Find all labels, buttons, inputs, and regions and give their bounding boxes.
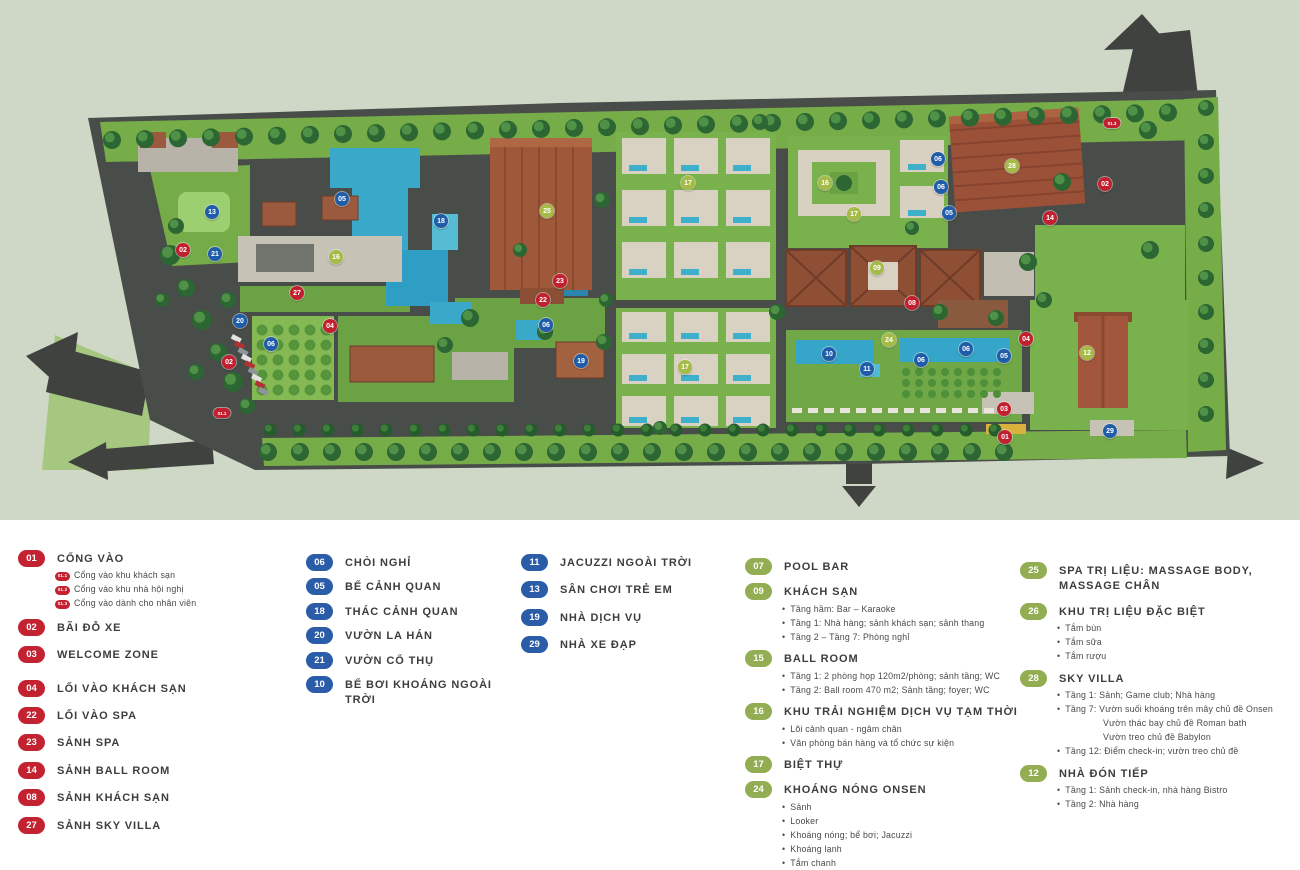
bullet: • bbox=[1057, 691, 1060, 701]
legend-sub-item: •Lõi cảnh quan - ngâm chân bbox=[782, 725, 1027, 735]
map-marker-03: 03 bbox=[997, 402, 1011, 416]
legend-badge-23: 23 bbox=[18, 734, 45, 751]
legend-item-14: 14SẢNH BALL ROOM bbox=[18, 762, 286, 779]
legend-sub-item: 01.2Cổng vào khu nhà hội nghị bbox=[55, 585, 286, 595]
legend-item-02: 02BÃI ĐỖ XE bbox=[18, 619, 286, 636]
map-marker-14: 14 bbox=[1043, 211, 1057, 225]
legend-badge-14: 14 bbox=[18, 762, 45, 779]
legend-item-05: 05BỂ CẢNH QUAN bbox=[306, 578, 511, 595]
legend-sub-item: •Tắm sữa bbox=[1057, 638, 1295, 648]
bullet: • bbox=[1057, 652, 1060, 662]
map-marker-11: 11 bbox=[860, 362, 874, 376]
legend-label: BỂ CẢNH QUAN bbox=[345, 578, 441, 595]
legend-label: LỐI VÀO KHÁCH SẠN bbox=[57, 680, 187, 697]
legend-sub-item: •Tầng 1: Sảnh check-in, nhà hàng Bistro bbox=[1057, 786, 1295, 796]
bullet: • bbox=[782, 633, 785, 643]
map-marker-28: 28 bbox=[1005, 159, 1019, 173]
legend-sub-badge-01.3: 01.3 bbox=[55, 600, 70, 609]
legend-badge-11: 11 bbox=[521, 554, 548, 571]
legend-sub-item: •Tầng 7: Vườn suối khoáng trên mây chủ đ… bbox=[1057, 705, 1295, 715]
map-marker-16: 16 bbox=[329, 250, 343, 264]
legend-label: SPA TRỊ LIỆU: MASSAGE BODY, MASSAGE CHÂN bbox=[1059, 562, 1295, 595]
legend-sub-item: •Tắm bùn bbox=[1057, 624, 1295, 634]
map-marker-13: 13 bbox=[205, 205, 219, 219]
legend-sub-item: •Looker bbox=[782, 817, 1027, 827]
legend-item-13: 13SÂN CHƠI TRẺ EM bbox=[521, 581, 726, 598]
bullet: • bbox=[1057, 800, 1060, 810]
legend-label: SẢNH BALL ROOM bbox=[57, 762, 170, 779]
map-marker-01: 01 bbox=[998, 430, 1012, 444]
legend-sub-item: •Tầng 2: Ball room 470 m2; Sảnh tầng; fo… bbox=[782, 686, 1027, 696]
legend-label: LỐI VÀO SPA bbox=[57, 707, 137, 724]
legend-sub-item: •Tầng 2 – Tầng 7: Phòng nghỉ bbox=[782, 633, 1027, 643]
legend-badge-22: 22 bbox=[18, 707, 45, 724]
legend-sub-item: •Tầng 1: 2 phòng họp 120m2/phòng; sảnh t… bbox=[782, 672, 1027, 682]
legend-badge-21: 21 bbox=[306, 652, 333, 669]
legend-sub-item: •Tắm rượu bbox=[1057, 652, 1295, 662]
legend-sub-item: •Tầng hầm: Bar – Karaoke bbox=[782, 605, 1027, 615]
legend-label: WELCOME ZONE bbox=[57, 646, 159, 663]
legend-item-29: 29NHÀ XE ĐẠP bbox=[521, 636, 726, 653]
legend-badge-16: 16 bbox=[745, 703, 772, 720]
legend-label: NHÀ DỊCH VỤ bbox=[560, 609, 642, 626]
legend-badge-24: 24 bbox=[745, 781, 772, 798]
map-marker-06: 06 bbox=[264, 337, 278, 351]
map-marker-02: 02 bbox=[1098, 177, 1112, 191]
legend-item-11: 11JACUZZI NGOÀI TRỜI bbox=[521, 554, 726, 571]
bullet: • bbox=[782, 831, 785, 841]
legend-badge-05: 05 bbox=[306, 578, 333, 595]
legend-badge-01: 01 bbox=[18, 550, 45, 567]
legend-sub-badge-01.2: 01.2 bbox=[55, 586, 70, 595]
legend-label: SẢNH KHÁCH SẠN bbox=[57, 789, 170, 806]
legend-item-06: 06CHÒI NGHỈ bbox=[306, 554, 511, 571]
legend-item-26: 26KHU TRỊ LIỆU ĐẶC BIỆT•Tắm bùn•Tắm sữa•… bbox=[1020, 603, 1295, 662]
legend-label: SKY VILLA bbox=[1059, 670, 1124, 687]
legend-badge-06: 06 bbox=[306, 554, 333, 571]
bullet: • bbox=[782, 725, 785, 735]
legend-column-outdoor: 11JACUZZI NGOÀI TRỜI13SÂN CHƠI TRẺ EM19N… bbox=[521, 554, 726, 664]
legend-sub-item: •Tầng 2: Nhà hàng bbox=[1057, 800, 1295, 810]
legend-label: KHÁCH SẠN bbox=[784, 583, 858, 600]
legend-item-18: 18THÁC CẢNH QUAN bbox=[306, 603, 511, 620]
bullet: • bbox=[1057, 624, 1060, 634]
legend-sub-item: •Văn phòng bán hàng và tổ chức sự kiện bbox=[782, 739, 1027, 749]
legend-sub-item: •Tầng 12: Điểm check-in; vườn treo chủ đ… bbox=[1057, 747, 1295, 757]
map-marker-21: 21 bbox=[208, 247, 222, 261]
legend-sub-item: •Tắm chanh bbox=[782, 859, 1027, 869]
legend-badge-12: 12 bbox=[1020, 765, 1047, 782]
map-marker-05: 05 bbox=[335, 192, 349, 206]
legend-sub-badge-01.1: 01.1 bbox=[55, 572, 70, 581]
legend-label: SẢNH SPA bbox=[57, 734, 120, 751]
map-marker-10: 10 bbox=[822, 347, 836, 361]
legend-badge-26: 26 bbox=[1020, 603, 1047, 620]
map-marker-01.3: 01.3 bbox=[1104, 118, 1121, 128]
legend-badge-17: 17 bbox=[745, 756, 772, 773]
map-marker-20: 20 bbox=[233, 314, 247, 328]
legend-item-20: 20VƯỜN LA HÁN bbox=[306, 627, 511, 644]
legend-item-01: 01CỔNG VÀO01.1Cổng vào khu khách sạn01.2… bbox=[18, 550, 286, 609]
legend-sub-item: •Khoáng lạnh bbox=[782, 845, 1027, 855]
map-marker-06: 06 bbox=[539, 318, 553, 332]
map-marker-18: 18 bbox=[434, 214, 448, 228]
legend-label: NHÀ XE ĐẠP bbox=[560, 636, 637, 653]
map-marker-06: 06 bbox=[934, 180, 948, 194]
legend-label: KHOÁNG NÓNG ONSEN bbox=[784, 781, 926, 798]
legend-label: BALL ROOM bbox=[784, 650, 859, 667]
map-marker-layer: 1321020201.12006270416051825232206191717… bbox=[0, 0, 1300, 520]
legend-item-15: 15BALL ROOM•Tầng 1: 2 phòng họp 120m2/ph… bbox=[745, 650, 1027, 695]
bullet: • bbox=[782, 686, 785, 696]
legend-label: VƯỜN LA HÁN bbox=[345, 627, 433, 644]
legend-label: SẢNH SKY VILLA bbox=[57, 817, 161, 834]
legend-column-facilities: 07POOL BAR09KHÁCH SẠN•Tầng hầm: Bar – Ka… bbox=[745, 558, 1027, 870]
legend-badge-10: 10 bbox=[306, 676, 333, 693]
map-marker-25: 25 bbox=[540, 204, 554, 218]
legend-sub-item: •Tầng 1: Sảnh; Game club; Nhà hàng bbox=[1057, 691, 1295, 701]
legend-badge-07: 07 bbox=[745, 558, 772, 575]
legend-label: CHÒI NGHỈ bbox=[345, 554, 411, 571]
legend-label: BỂ BƠI KHOÁNG NGOÀI TRỜI bbox=[345, 676, 511, 709]
legend-item-25: 25SPA TRỊ LIỆU: MASSAGE BODY, MASSAGE CH… bbox=[1020, 562, 1295, 595]
legend: 01CỔNG VÀO01.1Cổng vào khu khách sạn01.2… bbox=[0, 520, 1300, 870]
map-marker-12: 12 bbox=[1080, 346, 1094, 360]
legend-label: SÂN CHƠI TRẺ EM bbox=[560, 581, 673, 598]
legend-sub-item: 01.3Cổng vào dành cho nhân viên bbox=[55, 599, 286, 609]
map-marker-02: 02 bbox=[222, 355, 236, 369]
legend-badge-15: 15 bbox=[745, 650, 772, 667]
legend-label: KHU TRỊ LIỆU ĐẶC BIỆT bbox=[1059, 603, 1206, 620]
bullet: • bbox=[1057, 638, 1060, 648]
map-marker-04: 04 bbox=[1019, 332, 1033, 346]
bullet: • bbox=[782, 672, 785, 682]
legend-item-23: 23SẢNH SPA bbox=[18, 734, 286, 751]
legend-badge-29: 29 bbox=[521, 636, 548, 653]
bullet: • bbox=[782, 619, 785, 629]
legend-label: POOL BAR bbox=[784, 558, 849, 575]
legend-item-24: 24KHOÁNG NÓNG ONSEN•Sảnh•Looker•Khoáng n… bbox=[745, 781, 1027, 870]
legend-label: BIỆT THỰ bbox=[784, 756, 843, 773]
bullet: • bbox=[1057, 786, 1060, 796]
legend-item-08: 08SẢNH KHÁCH SẠN bbox=[18, 789, 286, 806]
map-marker-01.1: 01.1 bbox=[214, 408, 231, 418]
legend-sub-item: •Khoáng nóng; bể bơi; Jacuzzi bbox=[782, 831, 1027, 841]
legend-label: NHÀ ĐÓN TIẾP bbox=[1059, 765, 1149, 782]
legend-sub-item: 01.1Cổng vào khu khách sạn bbox=[55, 571, 286, 581]
site-plan-map: 1321020201.12006270416051825232206191717… bbox=[0, 0, 1300, 520]
map-marker-02: 02 bbox=[176, 243, 190, 257]
legend-item-09: 09KHÁCH SẠN•Tầng hầm: Bar – Karaoke•Tầng… bbox=[745, 583, 1027, 642]
legend-item-16: 16KHU TRẢI NGHIỆM DỊCH VỤ TẠM THỜI•Lõi c… bbox=[745, 703, 1027, 748]
bullet: • bbox=[782, 859, 785, 869]
bullet: • bbox=[1057, 705, 1060, 715]
legend-badge-28: 28 bbox=[1020, 670, 1047, 687]
bullet: • bbox=[782, 803, 785, 813]
map-marker-08: 08 bbox=[905, 296, 919, 310]
legend-item-17: 17BIỆT THỰ bbox=[745, 756, 1027, 773]
legend-badge-18: 18 bbox=[306, 603, 333, 620]
legend-item-07: 07POOL BAR bbox=[745, 558, 1027, 575]
map-marker-29: 29 bbox=[1103, 424, 1117, 438]
bullet: • bbox=[782, 739, 785, 749]
map-marker-04: 04 bbox=[323, 319, 337, 333]
legend-badge-08: 08 bbox=[18, 789, 45, 806]
legend-column-entrances: 01CỔNG VÀO01.1Cổng vào khu khách sạn01.2… bbox=[18, 550, 286, 844]
legend-label: JACUZZI NGOÀI TRỜI bbox=[560, 554, 692, 571]
legend-label: CỔNG VÀO bbox=[57, 550, 124, 567]
map-marker-06: 06 bbox=[959, 342, 973, 356]
legend-item-04: 04LỐI VÀO KHÁCH SẠN bbox=[18, 680, 286, 697]
legend-badge-03: 03 bbox=[18, 646, 45, 663]
legend-item-27: 27SẢNH SKY VILLA bbox=[18, 817, 286, 834]
legend-sub-item: •Sảnh bbox=[782, 803, 1027, 813]
legend-item-28: 28SKY VILLA•Tầng 1: Sảnh; Game club; Nhà… bbox=[1020, 670, 1295, 757]
map-marker-23: 23 bbox=[553, 274, 567, 288]
legend-badge-09: 09 bbox=[745, 583, 772, 600]
map-marker-05: 05 bbox=[997, 349, 1011, 363]
bullet: • bbox=[782, 817, 785, 827]
map-marker-22: 22 bbox=[536, 293, 550, 307]
legend-badge-20: 20 bbox=[306, 627, 333, 644]
legend-badge-04: 04 bbox=[18, 680, 45, 697]
map-marker-19: 19 bbox=[574, 354, 588, 368]
legend-badge-13: 13 bbox=[521, 581, 548, 598]
map-marker-05: 05 bbox=[942, 206, 956, 220]
map-marker-09: 09 bbox=[870, 261, 884, 275]
map-marker-06: 06 bbox=[931, 152, 945, 166]
map-marker-17: 17 bbox=[678, 360, 692, 374]
legend-item-10: 10BỂ BƠI KHOÁNG NGOÀI TRỜI bbox=[306, 676, 511, 709]
map-marker-24: 24 bbox=[882, 333, 896, 347]
legend-item-03: 03WELCOME ZONE bbox=[18, 646, 286, 663]
legend-item-22: 22LỐI VÀO SPA bbox=[18, 707, 286, 724]
bullet: • bbox=[782, 845, 785, 855]
legend-label: THÁC CẢNH QUAN bbox=[345, 603, 458, 620]
legend-column-spa-villa: 25SPA TRỊ LIỆU: MASSAGE BODY, MASSAGE CH… bbox=[1020, 562, 1295, 817]
masterplan-poster: 1321020201.12006270416051825232206191717… bbox=[0, 0, 1300, 870]
map-marker-17: 17 bbox=[847, 207, 861, 221]
legend-badge-02: 02 bbox=[18, 619, 45, 636]
map-marker-06: 06 bbox=[914, 353, 928, 367]
bullet: • bbox=[782, 605, 785, 615]
legend-badge-27: 27 bbox=[18, 817, 45, 834]
legend-label: KHU TRẢI NGHIỆM DỊCH VỤ TẠM THỜI bbox=[784, 703, 1018, 720]
legend-item-12: 12NHÀ ĐÓN TIẾP•Tầng 1: Sảnh check-in, nh… bbox=[1020, 765, 1295, 810]
legend-label: BÃI ĐỖ XE bbox=[57, 619, 121, 636]
legend-sub-item: •Tầng 1: Nhà hàng; sảnh khách sạn; sảnh … bbox=[782, 619, 1027, 629]
legend-label: VƯỜN CỔ THỤ bbox=[345, 652, 434, 669]
legend-badge-19: 19 bbox=[521, 609, 548, 626]
legend-badge-25: 25 bbox=[1020, 562, 1047, 579]
legend-sub-item: Vườn thác bay chủ đề Roman bath bbox=[1103, 719, 1295, 729]
bullet: • bbox=[1057, 747, 1060, 757]
map-marker-27: 27 bbox=[290, 286, 304, 300]
legend-column-landscape: 06CHÒI NGHỈ05BỂ CẢNH QUAN18THÁC CẢNH QUA… bbox=[306, 554, 511, 716]
legend-sub-item: Vườn treo chủ đề Babylon bbox=[1103, 733, 1295, 743]
map-marker-17: 17 bbox=[681, 176, 695, 190]
legend-item-21: 21VƯỜN CỔ THỤ bbox=[306, 652, 511, 669]
map-marker-16: 16 bbox=[818, 176, 832, 190]
legend-item-19: 19NHÀ DỊCH VỤ bbox=[521, 609, 726, 626]
